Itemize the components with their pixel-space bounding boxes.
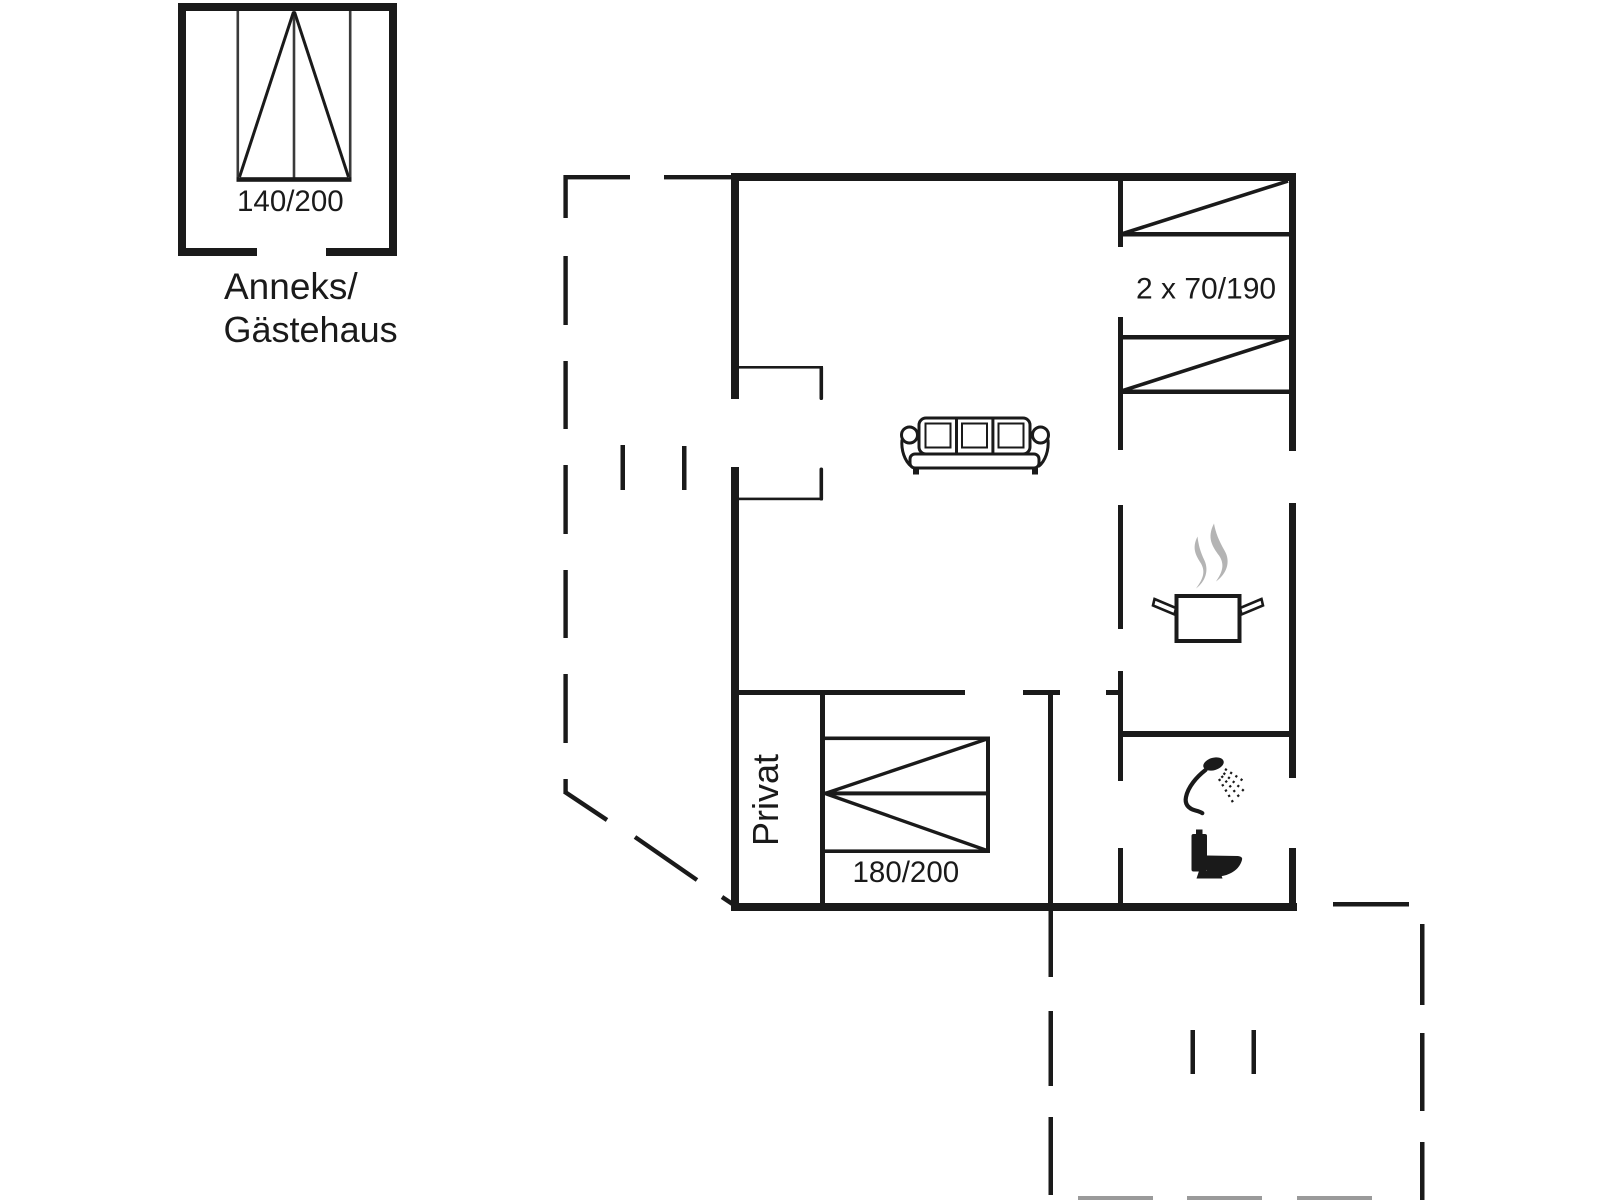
svg-text:Anneks/: Anneks/ [224, 266, 358, 307]
svg-text:140/200: 140/200 [237, 185, 344, 218]
svg-text:Privat: Privat [745, 754, 786, 846]
svg-text:Gästehaus: Gästehaus [224, 309, 398, 350]
svg-text:180/200: 180/200 [853, 856, 960, 889]
svg-text:2 x 70/190: 2 x 70/190 [1136, 273, 1276, 306]
